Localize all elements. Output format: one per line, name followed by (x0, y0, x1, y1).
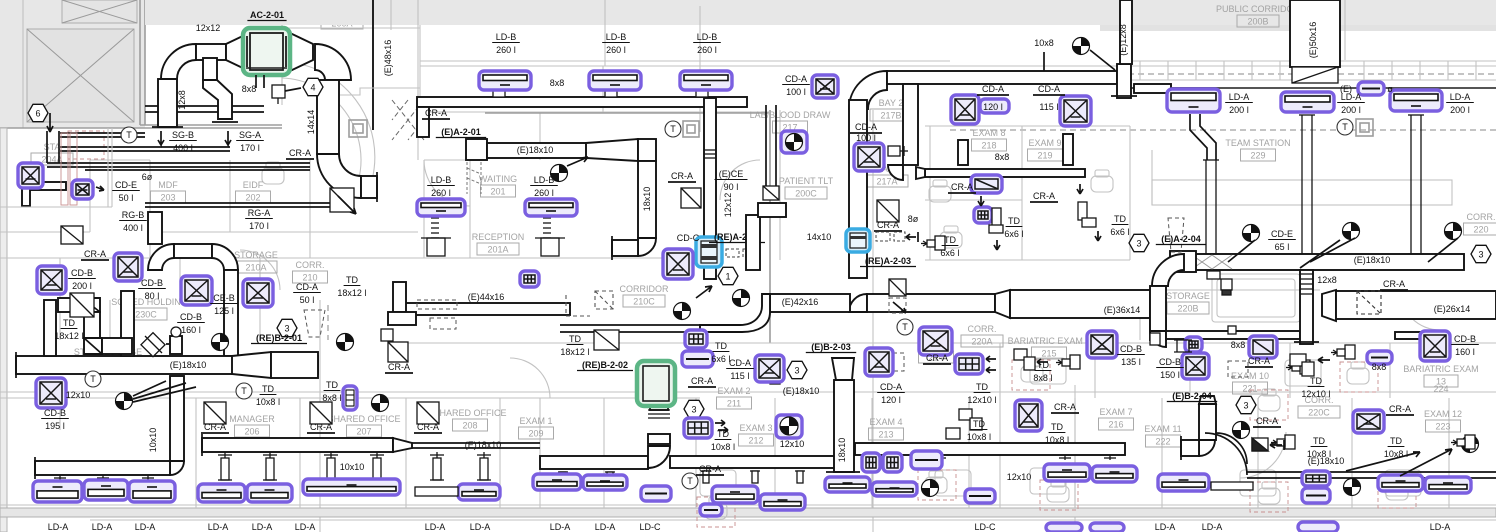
svg-text:LD-A: LD-A (1430, 522, 1451, 532)
svg-text:224: 224 (1433, 384, 1448, 394)
svg-text:LD-B: LD-B (496, 32, 517, 42)
svg-text:12x10 ǀ: 12x10 ǀ (1301, 389, 1330, 399)
svg-text:AC-2-01: AC-2-01 (250, 10, 284, 20)
svg-text:T: T (126, 130, 132, 140)
svg-text:(E)CE: (E)CE (719, 169, 744, 179)
svg-text:CR-A: CR-A (1054, 402, 1076, 412)
svg-text:203: 203 (160, 193, 175, 203)
svg-text:CORR.: CORR. (968, 324, 997, 334)
svg-text:EXAM 12: EXAM 12 (1424, 409, 1462, 419)
svg-text:18x12 ǀ: 18x12 ǀ (337, 288, 366, 298)
svg-text:LD-A: LD-A (92, 522, 113, 532)
svg-text:BARIATRIC EXAM 6: BARIATRIC EXAM 6 (1008, 336, 1091, 346)
svg-text:TD: TD (1114, 214, 1126, 224)
svg-text:260 ǀ: 260 ǀ (606, 45, 626, 55)
svg-text:4: 4 (310, 83, 315, 93)
svg-text:90 ǀ: 90 ǀ (724, 182, 739, 192)
svg-text:TD: TD (63, 318, 75, 328)
svg-text:TD: TD (717, 429, 729, 439)
svg-text:SHARED OFFICE: SHARED OFFICE (327, 414, 400, 424)
svg-text:200B: 200B (1247, 17, 1268, 27)
svg-text:220A: 220A (971, 337, 992, 347)
svg-text:120 ǀ: 120 ǀ (983, 102, 1003, 112)
svg-text:TEAM STATION: TEAM STATION (1225, 138, 1290, 148)
svg-text:80 ǀ: 80 ǀ (145, 291, 160, 301)
svg-text:(RE)B-2-01: (RE)B-2-01 (256, 333, 302, 343)
svg-text:CD-A: CD-A (1038, 84, 1060, 94)
svg-text:1: 1 (725, 272, 730, 282)
svg-text:CD-E: CD-E (1271, 229, 1293, 239)
svg-text:(E)B-2-04: (E)B-2-04 (1172, 391, 1212, 401)
svg-text:217B: 217B (880, 111, 901, 121)
svg-text:CR-A: CR-A (1248, 356, 1270, 366)
svg-text:PUBLIC CORRIDOR: PUBLIC CORRIDOR (1216, 4, 1301, 14)
svg-text:EXAM 8: EXAM 8 (972, 128, 1005, 138)
svg-text:211: 211 (727, 399, 741, 409)
svg-text:210A: 210A (245, 263, 266, 273)
svg-text:CD-A: CD-A (982, 84, 1004, 94)
svg-text:(E)48x16: (E)48x16 (383, 40, 393, 77)
svg-text:CR-A: CR-A (951, 182, 973, 192)
svg-text:201: 201 (490, 187, 505, 197)
svg-text:TD: TD (346, 275, 358, 285)
svg-text:210C: 210C (633, 297, 655, 307)
svg-text:(E)18x10: (E)18x10 (170, 360, 207, 370)
svg-text:18x12 ǀ: 18x12 ǀ (560, 347, 589, 357)
svg-text:260 ǀ: 260 ǀ (431, 188, 451, 198)
svg-text:CR-A: CR-A (1256, 416, 1278, 426)
svg-text:12x12: 12x12 (723, 193, 733, 218)
svg-text:CR-A: CR-A (204, 422, 226, 432)
svg-text:3: 3 (1478, 250, 1483, 260)
svg-text:6x6 ǀ: 6x6 ǀ (940, 248, 959, 258)
svg-text:10x8: 10x8 (1034, 38, 1054, 48)
svg-text:200 ǀ: 200 ǀ (1450, 105, 1470, 115)
svg-text:216: 216 (1108, 420, 1123, 430)
svg-text:10x10: 10x10 (148, 428, 158, 453)
svg-text:209: 209 (528, 429, 543, 439)
svg-text:100 ǀ: 100 ǀ (786, 87, 806, 97)
svg-text:10x8 ǀ: 10x8 ǀ (711, 442, 735, 452)
svg-text:CR-A: CR-A (926, 353, 948, 363)
svg-text:CD-A: CD-A (855, 122, 877, 132)
svg-text:CD-A: CD-A (785, 74, 807, 84)
svg-text:10x8 ǀ: 10x8 ǀ (256, 397, 280, 407)
svg-text:EXAM 11: EXAM 11 (1144, 424, 1181, 434)
svg-text:10x8 ǀ: 10x8 ǀ (967, 432, 991, 442)
svg-text:160 ǀ: 160 ǀ (181, 325, 201, 335)
svg-text:T: T (241, 386, 247, 396)
svg-text:229: 229 (1250, 151, 1265, 161)
svg-text:TD: TD (715, 341, 727, 351)
svg-text:WAITING: WAITING (479, 174, 517, 184)
svg-text:3: 3 (794, 366, 799, 376)
svg-text:CR-A: CR-A (310, 422, 332, 432)
svg-text:65 ǀ: 65 ǀ (1275, 242, 1290, 252)
svg-text:6x6 ǀ: 6x6 ǀ (1110, 227, 1129, 237)
svg-text:(E)B-2-03: (E)B-2-03 (811, 342, 851, 352)
svg-text:TD: TD (1313, 436, 1325, 446)
svg-text:3: 3 (691, 405, 696, 415)
svg-text:200C: 200C (795, 189, 817, 199)
svg-text:(E)26x14: (E)26x14 (1434, 304, 1471, 314)
svg-text:TD: TD (326, 380, 338, 390)
svg-text:TD: TD (1008, 216, 1020, 226)
svg-text:T: T (90, 374, 96, 384)
svg-text:12x10: 12x10 (66, 390, 91, 400)
svg-text:170 ǀ: 170 ǀ (240, 143, 260, 153)
svg-text:LD-C: LD-C (974, 522, 996, 532)
svg-text:215: 215 (1041, 349, 1056, 359)
svg-text:CR-A: CR-A (1033, 191, 1055, 201)
svg-text:SG-B: SG-B (172, 130, 194, 140)
svg-text:LD-A: LD-A (135, 522, 156, 532)
svg-text:8x8: 8x8 (550, 78, 565, 88)
svg-text:LAB/BLOOD DRAW: LAB/BLOOD DRAW (750, 110, 831, 120)
svg-text:10x8 ǀ: 10x8 ǀ (1045, 435, 1069, 445)
svg-text:TD: TD (569, 334, 581, 344)
svg-text:SHARED OFFICE: SHARED OFFICE (433, 408, 506, 418)
svg-text:(E)18x10: (E)18x10 (1354, 255, 1391, 265)
svg-text:T: T (687, 476, 693, 486)
svg-text:400 ǀ: 400 ǀ (123, 223, 143, 233)
svg-text:260 ǀ: 260 ǀ (496, 45, 516, 55)
svg-text:CD-B: CD-B (1159, 357, 1181, 367)
svg-text:ø: ø (1387, 84, 1393, 94)
svg-text:EXAM 3: EXAM 3 (739, 423, 772, 433)
svg-text:RG-A: RG-A (248, 208, 271, 218)
svg-text:MANAGER: MANAGER (229, 414, 275, 424)
svg-text:223: 223 (1435, 422, 1450, 432)
svg-text:LD-B: LD-B (606, 32, 627, 42)
svg-text:14x14: 14x14 (306, 110, 316, 135)
svg-text:BARIATRIC EXAM: BARIATRIC EXAM (1403, 364, 1478, 374)
svg-text:219: 219 (1037, 151, 1052, 161)
svg-text:220B: 220B (1177, 304, 1198, 314)
svg-text:207: 207 (356, 427, 371, 437)
svg-text:12x12: 12x12 (196, 23, 221, 33)
svg-text:(E)44x16: (E)44x16 (468, 292, 505, 302)
svg-text:14x10: 14x10 (807, 232, 832, 242)
svg-text:LD-A: LD-A (252, 522, 273, 532)
svg-text:213: 213 (878, 430, 893, 440)
svg-text:EXAM 1: EXAM 1 (519, 416, 552, 426)
svg-text:8x8: 8x8 (1231, 340, 1246, 350)
svg-text:201A: 201A (487, 245, 508, 255)
svg-text:EXAM 4: EXAM 4 (869, 417, 902, 427)
svg-text:12x8: 12x8 (177, 90, 187, 110)
svg-text:260 ǀ: 260 ǀ (697, 45, 717, 55)
svg-text:218: 218 (981, 141, 996, 151)
svg-text:TD: TD (944, 235, 956, 245)
svg-text:CD-B: CD-B (180, 312, 202, 322)
svg-text:LD-A: LD-A (550, 522, 571, 532)
svg-text:212: 212 (748, 436, 763, 446)
svg-text:CORR.: CORR. (1467, 212, 1496, 222)
svg-text:RECEPTION: RECEPTION (472, 232, 525, 242)
svg-text:STA: STA (44, 142, 61, 152)
svg-text:120 ǀ: 120 ǀ (881, 395, 901, 405)
svg-text:221: 221 (1242, 384, 1257, 394)
svg-text:12x10 ǀ: 12x10 ǀ (967, 395, 996, 405)
svg-text:10x10: 10x10 (340, 462, 365, 472)
svg-text:CD-B: CD-B (44, 408, 66, 418)
svg-text:8ø: 8ø (908, 214, 919, 224)
svg-text:CD-A: CD-A (880, 382, 902, 392)
svg-text:(E)12x8: (E)12x8 (1118, 24, 1128, 56)
svg-text:100 ǀ: 100 ǀ (856, 133, 876, 143)
svg-text:230C: 230C (135, 310, 157, 320)
svg-text:SG-A: SG-A (239, 130, 261, 140)
svg-text:TD: TD (262, 384, 274, 394)
svg-text:CR-A: CR-A (691, 376, 713, 386)
svg-text:18x12 ǀ: 18x12 ǀ (54, 331, 83, 341)
svg-text:50 ǀ: 50 ǀ (300, 295, 315, 305)
svg-text:CR-A: CR-A (1383, 279, 1405, 289)
svg-text:(E)36x14: (E)36x14 (1104, 305, 1141, 315)
svg-text:(E)18x10: (E)18x10 (783, 386, 820, 396)
svg-text:8x8: 8x8 (1372, 362, 1387, 372)
svg-text:202: 202 (245, 193, 260, 203)
svg-text:8x8 ǀ: 8x8 ǀ (322, 393, 341, 403)
svg-text:T: T (902, 322, 908, 332)
svg-text:CR-A: CR-A (84, 249, 106, 259)
svg-text:CR-A: CR-A (417, 422, 439, 432)
svg-text:MDF: MDF (158, 180, 178, 190)
svg-text:CORRIDOR: CORRIDOR (620, 284, 669, 294)
svg-text:CR-A: CR-A (425, 108, 447, 118)
svg-text:CD-B: CD-B (1120, 344, 1142, 354)
svg-text:260 ǀ: 260 ǀ (534, 188, 554, 198)
svg-text:12x8: 12x8 (1317, 275, 1337, 285)
svg-text:3: 3 (1136, 239, 1141, 249)
svg-text:LD-A: LD-A (1229, 92, 1250, 102)
svg-text:(E)42x16: (E)42x16 (782, 297, 819, 307)
svg-text:(E)A-2-04: (E)A-2-04 (1161, 234, 1201, 244)
svg-text:3: 3 (284, 324, 289, 334)
svg-text:10x8 ǀ: 10x8 ǀ (1384, 449, 1408, 459)
svg-text:(RE)A-2-03: (RE)A-2-03 (865, 256, 911, 266)
svg-text:LD-A: LD-A (208, 522, 229, 532)
svg-text:12x10: 12x10 (780, 439, 805, 449)
svg-text:200 ǀ: 200 ǀ (72, 281, 92, 291)
svg-text:LD-B: LD-B (534, 175, 555, 185)
svg-text:CD-A: CD-A (729, 358, 751, 368)
svg-text:8x8: 8x8 (995, 152, 1010, 162)
svg-text:TD: TD (973, 419, 985, 429)
svg-text:206: 206 (244, 427, 259, 437)
svg-text:CR-A: CR-A (1389, 404, 1411, 414)
svg-text:CR-A: CR-A (699, 464, 721, 474)
svg-text:12x10: 12x10 (1007, 472, 1032, 482)
svg-text:18x10: 18x10 (642, 187, 652, 212)
svg-text:(E): (E) (1340, 84, 1352, 94)
svg-text:18x10: 18x10 (837, 438, 847, 463)
svg-text:125 ǀ: 125 ǀ (214, 306, 234, 316)
svg-text:TD: TD (976, 382, 988, 392)
svg-text:RG-B: RG-B (122, 210, 145, 220)
svg-text:LD-A: LD-A (295, 522, 316, 532)
svg-text:6ø: 6ø (142, 172, 153, 182)
svg-text:STORAGE: STORAGE (1166, 291, 1210, 301)
svg-text:LD-A: LD-A (595, 522, 616, 532)
svg-text:LD-A: LD-A (1450, 92, 1471, 102)
svg-text:50 ǀ: 50 ǀ (119, 193, 134, 203)
svg-text:BAY 2: BAY 2 (879, 98, 904, 108)
svg-text:CR-A: CR-A (877, 220, 899, 230)
svg-text:200 ǀ: 200 ǀ (1341, 105, 1361, 115)
svg-text:CR-A: CR-A (671, 171, 693, 181)
svg-text:TD: TD (1051, 422, 1063, 432)
svg-text:195 ǀ: 195 ǀ (45, 421, 65, 431)
svg-text:EXAM 7: EXAM 7 (1099, 407, 1132, 417)
svg-text:TD: TD (1310, 376, 1322, 386)
svg-text:160 ǀ: 160 ǀ (1455, 347, 1475, 357)
svg-text:CD-E: CD-E (115, 180, 137, 190)
svg-text:6: 6 (35, 109, 40, 119)
svg-text:CD-B: CD-B (1454, 334, 1476, 344)
svg-text:STORAGE: STORAGE (234, 250, 278, 260)
svg-text:400 ǀ: 400 ǀ (173, 143, 193, 153)
svg-text:PATIENT TLT: PATIENT TLT (779, 176, 834, 186)
svg-text:T: T (670, 124, 676, 134)
svg-text:CD-B: CD-B (141, 278, 163, 288)
svg-text:(RE)B-2-02: (RE)B-2-02 (582, 360, 628, 370)
svg-text:CE-B: CE-B (213, 293, 235, 303)
svg-text:170 ǀ: 170 ǀ (249, 221, 269, 231)
svg-text:8x8 ǀ: 8x8 ǀ (1033, 373, 1052, 383)
svg-text:LD-A: LD-A (1202, 522, 1223, 532)
svg-text:3: 3 (1243, 401, 1248, 411)
svg-text:150 ǀ: 150 ǀ (1160, 370, 1180, 380)
svg-text:EIDF: EIDF (243, 180, 264, 190)
svg-text:LD-B: LD-B (697, 32, 718, 42)
svg-text:115 ǀ: 115 ǀ (730, 371, 749, 381)
svg-text:CR-A: CR-A (388, 362, 410, 372)
svg-text:(E)18x10: (E)18x10 (1308, 456, 1345, 466)
svg-text:208: 208 (462, 421, 477, 431)
svg-text:(E)A-2-01: (E)A-2-01 (441, 127, 481, 137)
svg-text:T: T (1342, 122, 1348, 132)
svg-text:(E)18x10: (E)18x10 (465, 440, 502, 450)
svg-text:210: 210 (302, 273, 317, 283)
svg-text:EXAM 10: EXAM 10 (1231, 371, 1269, 381)
svg-text:200 ǀ: 200 ǀ (1229, 105, 1249, 115)
svg-text:EXAM 9: EXAM 9 (1028, 138, 1061, 148)
svg-text:135 ǀ: 135 ǀ (1121, 357, 1141, 367)
svg-text:LD-A: LD-A (1155, 522, 1176, 532)
svg-text:CR-A: CR-A (289, 148, 311, 158)
svg-text:220: 220 (1473, 225, 1488, 235)
svg-text:CORR.: CORR. (296, 260, 325, 270)
svg-text:220C: 220C (1308, 408, 1330, 418)
svg-text:CD-A: CD-A (296, 282, 318, 292)
svg-text:222: 222 (1155, 437, 1170, 447)
svg-text:(E)18x10: (E)18x10 (517, 145, 554, 155)
svg-text:CD-B: CD-B (71, 268, 93, 278)
svg-text:8x8: 8x8 (242, 84, 257, 94)
svg-text:6x6 ǀ: 6x6 ǀ (1004, 229, 1023, 239)
svg-text:LD-A: LD-A (425, 522, 446, 532)
svg-text:LD-B: LD-B (431, 175, 452, 185)
svg-text:(E)50x16: (E)50x16 (1308, 22, 1318, 59)
svg-text:EXAM 2: EXAM 2 (717, 386, 750, 396)
svg-text:6x6 ǀ: 6x6 ǀ (711, 354, 730, 364)
svg-text:LD-A: LD-A (470, 522, 491, 532)
svg-text:115 ǀ: 115 ǀ (1039, 102, 1058, 112)
svg-text:LD-C: LD-C (639, 522, 661, 532)
svg-text:CD-C: CD-C (677, 233, 700, 243)
svg-text:LD-A: LD-A (48, 522, 69, 532)
svg-text:TD: TD (1390, 436, 1402, 446)
